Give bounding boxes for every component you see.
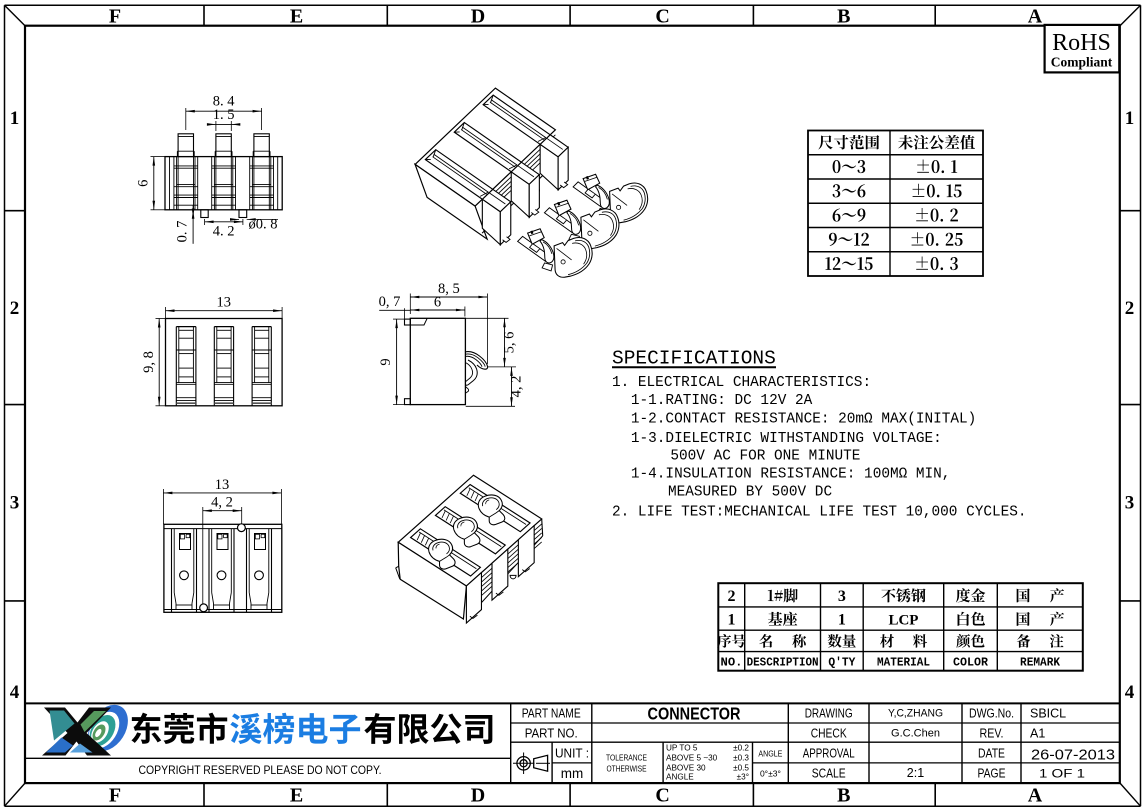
svg-text:UNIT :: UNIT : — [555, 746, 589, 761]
svg-text:1 OF 1: 1 OF 1 — [1039, 769, 1085, 781]
svg-text:2: 2 — [1125, 298, 1135, 319]
svg-text:SBICL: SBICL — [1030, 707, 1066, 721]
svg-text:Q'TY: Q'TY — [828, 656, 856, 670]
svg-text:1: 1 — [728, 612, 736, 629]
svg-text:±0.3: ±0.3 — [733, 754, 749, 763]
svg-text:D: D — [471, 6, 485, 28]
svg-text:ANGLE: ANGLE — [666, 773, 694, 782]
svg-text:1. ELECTRICAL CHARACTERISTICS:: 1. ELECTRICAL CHARACTERISTICS: — [612, 375, 871, 391]
svg-text:4, 2: 4, 2 — [211, 495, 233, 511]
svg-text:A: A — [1028, 785, 1043, 807]
svg-text:1-2.CONTACT RESISTANCE: 20mΩ: 1-2.CONTACT RESISTANCE: 20mΩ MAX(INITAL) — [631, 411, 976, 427]
svg-text:TOLERANCE: TOLERANCE — [606, 754, 647, 763]
svg-text:4. 2: 4. 2 — [213, 224, 235, 240]
svg-text:SCALE: SCALE — [812, 767, 846, 781]
svg-text:2:1: 2:1 — [907, 766, 924, 780]
svg-text:13: 13 — [215, 477, 230, 493]
svg-text:1. 5: 1. 5 — [213, 107, 235, 123]
svg-text:13: 13 — [216, 295, 231, 311]
svg-text:1: 1 — [10, 108, 20, 129]
svg-text:COPYRIGHT RESERVED PLEASE DO: COPYRIGHT RESERVED PLEASE DO NOT COPY. — [139, 763, 382, 777]
svg-text:3: 3 — [10, 493, 20, 514]
svg-text:PART NO.: PART NO. — [525, 727, 578, 741]
svg-text:4: 4 — [1125, 682, 1135, 703]
svg-text:G.C.Chen: G.C.Chen — [891, 728, 940, 740]
svg-text:ABOVE 5 ~30: ABOVE 5 ~30 — [666, 754, 718, 763]
svg-text:2: 2 — [10, 298, 20, 319]
svg-text:±0.2: ±0.2 — [733, 744, 749, 753]
svg-text:ABOVE 30: ABOVE 30 — [666, 764, 706, 773]
svg-text:REV.: REV. — [980, 727, 1004, 741]
svg-text:0. 7: 0. 7 — [175, 221, 191, 243]
svg-text:2: 2 — [728, 588, 736, 605]
svg-text:mm: mm — [561, 766, 584, 781]
svg-text:9, 8: 9, 8 — [141, 351, 157, 373]
svg-text:0°±3°: 0°±3° — [760, 769, 781, 779]
svg-text:B: B — [837, 785, 850, 807]
svg-text:3: 3 — [838, 588, 846, 605]
svg-text:F: F — [109, 785, 121, 807]
svg-text:DRAWING: DRAWING — [805, 707, 853, 721]
svg-text:8, 5: 8, 5 — [438, 281, 460, 297]
svg-text:±0.5: ±0.5 — [733, 764, 749, 773]
svg-text:F: F — [109, 6, 121, 28]
svg-text:E: E — [290, 785, 303, 807]
svg-text:±3°: ±3° — [737, 773, 749, 782]
svg-text:CONNECTOR: CONNECTOR — [648, 704, 741, 724]
svg-text:1-4.INSULATION RESISTANCE: 100: 1-4.INSULATION RESISTANCE: 100MΩ MIN, — [631, 467, 951, 483]
svg-text:500V AC FOR ONE MINUTE: 500V AC FOR ONE MINUTE — [670, 448, 860, 464]
svg-text:PART NAME: PART NAME — [522, 707, 581, 721]
svg-text:Y,C,ZHANG: Y,C,ZHANG — [888, 708, 943, 720]
svg-text:A: A — [1028, 6, 1043, 28]
svg-text:NO.: NO. — [721, 656, 743, 670]
svg-text:C: C — [655, 6, 669, 28]
svg-text:UP TO 5: UP TO 5 — [666, 744, 698, 753]
svg-text:1: 1 — [838, 612, 846, 629]
svg-text:SPECIFICATIONS: SPECIFICATIONS — [612, 347, 776, 369]
svg-text:OTHERWISE: OTHERWISE — [607, 765, 647, 774]
svg-text:3: 3 — [1125, 493, 1135, 514]
svg-text:2. LIFE TEST:MECHANICAL LIFE T: 2. LIFE TEST:MECHANICAL LIFE TEST 10,000… — [612, 505, 1027, 521]
svg-text:6: 6 — [434, 295, 441, 311]
svg-text:CHECK: CHECK — [811, 727, 848, 741]
svg-text:APPROVAL: APPROVAL — [803, 747, 855, 761]
svg-text:RoHS: RoHS — [1052, 30, 1111, 56]
svg-text:A1: A1 — [1030, 727, 1045, 741]
svg-text:DWG.No.: DWG.No. — [969, 707, 1014, 721]
svg-text:1-1.RATING: DC 12V 2A: 1-1.RATING: DC 12V 2A — [631, 393, 813, 409]
svg-text:ø0. 8: ø0. 8 — [249, 217, 278, 233]
svg-text:LCP: LCP — [888, 613, 918, 629]
svg-text:4: 4 — [10, 682, 20, 703]
svg-text:E: E — [290, 6, 303, 28]
svg-text:0, 7: 0, 7 — [379, 294, 401, 310]
svg-text:D: D — [471, 785, 485, 807]
svg-text:MATERIAL: MATERIAL — [877, 656, 930, 670]
svg-text:PAGE: PAGE — [978, 767, 1006, 781]
svg-text:Compliant: Compliant — [1051, 55, 1113, 70]
svg-text:DATE: DATE — [978, 747, 1005, 761]
svg-text:1-3.DIELECTRIC WITHSTANDING VO: 1-3.DIELECTRIC WITHSTANDING VOLTAGE: — [631, 431, 942, 447]
svg-text:MEASURED BY 500V DC: MEASURED BY 500V DC — [668, 485, 832, 501]
svg-text:DESCRIPTION: DESCRIPTION — [747, 656, 819, 670]
svg-text:REMARK: REMARK — [1020, 656, 1061, 670]
svg-text:COLOR: COLOR — [953, 656, 989, 670]
svg-text:5, 6: 5, 6 — [502, 332, 518, 354]
svg-text:6: 6 — [136, 180, 152, 187]
svg-text:9: 9 — [378, 358, 394, 365]
svg-text:1: 1 — [1125, 108, 1135, 129]
svg-text:C: C — [655, 785, 669, 807]
svg-text:B: B — [837, 6, 850, 28]
svg-text:ANGLE: ANGLE — [758, 750, 782, 759]
svg-text:4, 2: 4, 2 — [508, 376, 524, 398]
svg-text:26-07-2013: 26-07-2013 — [1031, 748, 1115, 764]
